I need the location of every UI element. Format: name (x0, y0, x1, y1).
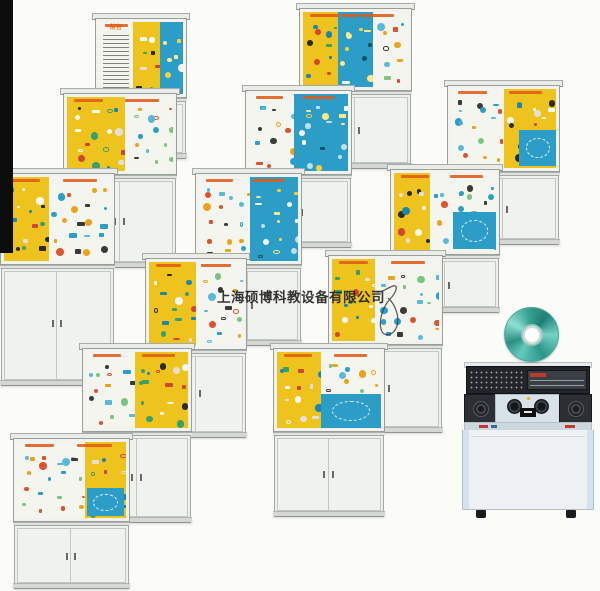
title-strip (341, 14, 360, 17)
machine-part (344, 106, 348, 110)
display-case (390, 169, 500, 255)
machine-part (172, 308, 176, 312)
machine-part (255, 203, 262, 205)
machine-part (255, 141, 260, 145)
machine-part (101, 246, 108, 253)
display-panel-white (17, 442, 85, 518)
display-panel-yellow (149, 262, 196, 346)
machine-part (177, 420, 184, 427)
machine-part (165, 383, 173, 388)
title-strip (253, 179, 285, 182)
machine-part (138, 108, 142, 112)
machine-part (17, 206, 21, 208)
display-panel-white (199, 177, 250, 261)
machine-part (441, 201, 448, 208)
door-handle (332, 471, 334, 478)
machine-part (401, 23, 405, 27)
display-panel-white (125, 97, 173, 171)
machine-part (534, 123, 537, 126)
machine-part (402, 207, 410, 215)
machine-part (261, 224, 265, 228)
machine-part (16, 247, 20, 251)
machine-part (107, 373, 113, 376)
machine-part (167, 58, 172, 63)
description-text-lines (103, 35, 129, 89)
machine-part (96, 373, 100, 377)
machine-part (384, 76, 391, 81)
machine-part (383, 46, 388, 50)
machine-part (219, 205, 223, 209)
machine-part (160, 412, 165, 416)
sub-panel-blue (453, 212, 496, 249)
title-strip (509, 91, 543, 94)
door-handle (199, 390, 201, 397)
machine-part (534, 110, 541, 117)
machine-part (375, 384, 378, 387)
machine-part (427, 302, 430, 305)
machine-part (85, 204, 91, 207)
tape-slot-window (524, 411, 532, 413)
machine-part (240, 222, 244, 227)
title-strip (284, 354, 312, 357)
machine-part (484, 201, 487, 205)
display-panel-blue (250, 177, 298, 261)
display-panel-yellow (67, 97, 125, 171)
machine-part (345, 367, 350, 372)
machine-part (92, 110, 100, 113)
machine-part (94, 389, 98, 393)
display-window (67, 97, 173, 171)
machine-part (229, 196, 233, 200)
machine-part (69, 233, 77, 238)
machine-part (417, 276, 425, 284)
machine-part (294, 192, 298, 194)
label-chip (491, 425, 497, 428)
machine-part (263, 239, 269, 245)
machine-part (215, 273, 222, 280)
door-handle (74, 553, 76, 560)
display-window (17, 442, 126, 518)
title-strip (105, 24, 128, 27)
dashed-curve-diagram (93, 494, 117, 511)
door-handle (506, 206, 508, 213)
machine-part (62, 458, 70, 466)
door-handle (358, 127, 360, 134)
machine-part (286, 420, 292, 424)
display-window (86, 352, 188, 428)
machine-part (326, 121, 332, 123)
machine-part (169, 157, 173, 163)
console-foot (476, 510, 486, 518)
machine-part (48, 477, 51, 480)
title-strip (401, 175, 429, 178)
display-panel-yellow (133, 22, 161, 94)
machine-part (224, 223, 228, 227)
machine-part (227, 239, 233, 245)
display-panel-white (321, 352, 381, 428)
machine-part (306, 74, 311, 79)
display-cabinet-c13 (13, 433, 130, 589)
machine-part (103, 147, 110, 151)
machine-part (169, 127, 173, 133)
machine-part (79, 477, 82, 481)
body-seam (471, 436, 585, 437)
machine-part (39, 462, 47, 470)
machine-part (298, 369, 304, 373)
machine-part (436, 292, 439, 300)
cupboard (274, 435, 384, 517)
machine-part (332, 364, 338, 367)
machine-part (62, 218, 67, 223)
display-window (303, 12, 408, 87)
machine-part (359, 370, 367, 378)
machine-part (110, 415, 115, 419)
machine-part (483, 156, 486, 159)
machine-part (491, 187, 495, 190)
product-montage: 上海硕博科教设备有限公司 前言 (0, 0, 600, 591)
display-case (447, 85, 560, 172)
machine-part (39, 509, 42, 513)
machine-part (509, 123, 514, 128)
machine-part (22, 503, 26, 507)
machine-part (359, 28, 363, 31)
machine-part (270, 138, 277, 145)
machine-part (115, 128, 123, 136)
machine-part (277, 220, 280, 223)
machine-part (422, 206, 426, 210)
machine-part (341, 123, 345, 125)
machine-part (140, 37, 147, 41)
title-strip (201, 264, 231, 267)
machine-part (356, 270, 360, 275)
display-case: 前言 (95, 18, 187, 98)
title-strip (206, 179, 233, 182)
cupboard-door-right (444, 261, 496, 307)
machine-part (306, 114, 312, 118)
speaker-cone-icon (472, 400, 490, 418)
machine-part (238, 334, 241, 337)
rack-buttons (469, 370, 525, 390)
machine-part (27, 471, 31, 475)
machine-part (435, 328, 439, 330)
machine-part (22, 188, 25, 191)
machine-part (397, 59, 404, 62)
control-desk (464, 394, 592, 422)
dashed-curve-diagram (332, 401, 370, 421)
display-case (273, 348, 385, 432)
machine-part (225, 249, 231, 252)
machine-part (273, 250, 280, 254)
machine-part (121, 471, 127, 474)
machine-part (258, 255, 264, 258)
machine-part (443, 238, 449, 244)
display-panel-blue (160, 22, 183, 94)
machine-part (440, 193, 443, 196)
machine-part (107, 109, 113, 113)
machine-part (285, 399, 289, 401)
title-strip (391, 261, 425, 264)
machine-part (173, 338, 180, 341)
machine-part (312, 416, 319, 420)
machine-part (459, 110, 462, 113)
machine-part (40, 222, 45, 227)
machine-part (291, 248, 298, 255)
machine-part (415, 229, 422, 236)
machine-part (241, 246, 246, 251)
title-strip (361, 14, 395, 17)
machine-part (338, 155, 342, 159)
machine-part (191, 317, 196, 320)
title-strip (11, 179, 40, 182)
machine-part (326, 31, 332, 37)
machine-part (186, 280, 191, 285)
door-handle (131, 474, 133, 481)
machine-part (78, 107, 81, 110)
cd-hub (523, 326, 541, 344)
machine-part (78, 155, 85, 162)
display-window (199, 177, 298, 261)
machine-part (344, 379, 349, 384)
machine-part (114, 108, 118, 112)
machine-part (25, 456, 29, 460)
machine-part (305, 123, 310, 128)
audio-rack-panel (466, 366, 590, 394)
machine-part (401, 275, 406, 277)
display-window: 前言 (99, 22, 183, 94)
cupboard-door-left (4, 271, 58, 380)
dashed-curve-diagram (461, 220, 489, 241)
machine-part (84, 235, 91, 237)
machine-part (225, 306, 232, 310)
stereo-slot (530, 380, 584, 381)
watermark-squiggle (360, 280, 410, 348)
display-window (4, 177, 111, 261)
machine-part (153, 127, 160, 134)
cupboard-door-right (70, 528, 126, 583)
machine-part (436, 275, 439, 280)
machine-part (459, 191, 464, 196)
machine-part (22, 246, 26, 250)
machine-part (134, 115, 138, 118)
machine-part (104, 207, 107, 210)
machine-part (364, 30, 371, 32)
machine-part (92, 460, 99, 464)
machine-part (85, 219, 92, 226)
machine-part (203, 203, 211, 211)
control-console (462, 362, 594, 518)
machine-part (143, 52, 147, 55)
speaker-right (559, 394, 592, 424)
machine-part (497, 158, 501, 162)
machine-part (39, 246, 46, 251)
machine-part (491, 117, 496, 119)
machine-part (89, 373, 93, 377)
door-handle (323, 471, 325, 478)
machine-part (167, 274, 172, 276)
machine-part (217, 332, 223, 334)
display-panel-white (249, 94, 294, 171)
display-case (13, 438, 130, 522)
display-case (63, 93, 177, 175)
cupboard-door-right (384, 351, 439, 427)
machine-part (316, 106, 319, 109)
cupboard-door-right (297, 181, 348, 242)
machine-part (42, 456, 46, 460)
machine-part (393, 27, 398, 32)
display-panel-blue (338, 12, 374, 87)
machine-part (335, 332, 340, 337)
title-strip (450, 175, 483, 178)
title-strip (156, 264, 181, 267)
machine-part (261, 107, 265, 111)
machine-part (360, 389, 364, 393)
machine-part (154, 308, 158, 312)
machine-part (417, 300, 423, 304)
machine-part (99, 233, 104, 237)
label-chip (565, 425, 575, 428)
cabinet-base (273, 511, 385, 516)
cupboard (14, 525, 129, 589)
machine-part (182, 385, 185, 389)
machine-part (57, 463, 63, 465)
machine-part (151, 51, 155, 55)
machine-part (295, 236, 298, 243)
cupboard-door-right (328, 438, 381, 511)
machine-part (315, 29, 321, 35)
machine-part (91, 132, 98, 139)
machine-part (99, 421, 103, 425)
machine-part (326, 44, 333, 46)
machine-part (542, 117, 545, 119)
machine-part (302, 140, 306, 144)
machine-part (306, 110, 312, 112)
machine-part (297, 386, 300, 390)
machine-part (105, 400, 112, 405)
machine-part (280, 369, 284, 373)
machine-part (103, 188, 107, 192)
stereo-slot (530, 385, 584, 386)
title-strip (458, 91, 486, 94)
machine-part (161, 331, 167, 337)
machine-part (334, 27, 337, 29)
machine-part (362, 56, 367, 61)
machine-part (335, 277, 339, 280)
sub-panel-blue (321, 394, 381, 428)
machine-part (299, 130, 305, 136)
machine-part (256, 196, 260, 198)
machine-part (339, 114, 346, 118)
machine-part (75, 129, 81, 132)
speaker-left (464, 394, 497, 424)
machine-part (342, 317, 348, 323)
machine-part (342, 81, 349, 84)
display-panel-yellow (394, 173, 430, 251)
machine-part (287, 202, 292, 207)
title-strip (25, 444, 54, 447)
cupboard-door-left (277, 438, 329, 511)
machine-part (277, 189, 280, 192)
machine-part (307, 163, 313, 169)
machine-part (208, 293, 216, 301)
title-strip (63, 179, 97, 182)
machine-part (327, 72, 330, 75)
machine-part (434, 194, 438, 198)
title-strip (77, 444, 112, 447)
machine-part (276, 122, 281, 127)
label-chip (479, 425, 488, 428)
machine-part (346, 33, 352, 39)
console-body (462, 430, 594, 510)
machine-part (182, 403, 188, 409)
title-strip (256, 96, 283, 99)
machine-part (548, 108, 555, 112)
display-case (0, 173, 115, 265)
machine-part (92, 188, 97, 193)
door-handle (448, 282, 450, 289)
machine-part (371, 370, 376, 375)
machine-part (163, 41, 167, 45)
machine-part (488, 194, 494, 200)
machine-part (118, 160, 124, 166)
title-strip (339, 261, 368, 264)
machine-part (134, 157, 139, 159)
machine-part (67, 193, 71, 197)
machine-part (160, 363, 166, 369)
machine-part (78, 149, 83, 152)
cupboard-door-right (502, 178, 556, 239)
door-handle (66, 553, 68, 560)
display-window (451, 89, 556, 168)
machine-part (480, 107, 486, 113)
sub-panel-blue (87, 488, 124, 517)
machine-part (341, 144, 347, 150)
machine-part (207, 340, 212, 342)
machine-part (89, 396, 94, 401)
machine-part (256, 162, 263, 165)
title-strip (334, 354, 367, 357)
machine-part (174, 55, 179, 59)
display-window (249, 94, 348, 171)
machine-part (240, 280, 243, 282)
machine-part (77, 222, 85, 227)
machine-part (339, 372, 346, 379)
cd-disc (504, 307, 559, 362)
machine-part (100, 224, 107, 229)
machine-part (75, 115, 80, 120)
display-panel-white (430, 173, 496, 251)
machine-part (399, 193, 403, 197)
machine-part (120, 454, 126, 459)
machine-part (58, 193, 65, 200)
dial-right (534, 399, 549, 414)
machine-part (61, 471, 66, 474)
machine-part (61, 506, 66, 511)
machine-part (279, 238, 282, 241)
machine-part (326, 389, 331, 392)
machine-part (141, 401, 145, 405)
door-handle (388, 385, 390, 392)
cupboard-door-right (195, 356, 243, 432)
machine-part (57, 496, 62, 500)
machine-part (467, 194, 473, 200)
indicator-led (527, 397, 530, 400)
display-panel-blue (294, 94, 348, 171)
title-strip (125, 99, 159, 102)
machine-part (83, 249, 91, 257)
display-panel-yellow (303, 12, 338, 87)
cupboard-door-left (17, 528, 72, 583)
stereo-unit (527, 370, 587, 390)
